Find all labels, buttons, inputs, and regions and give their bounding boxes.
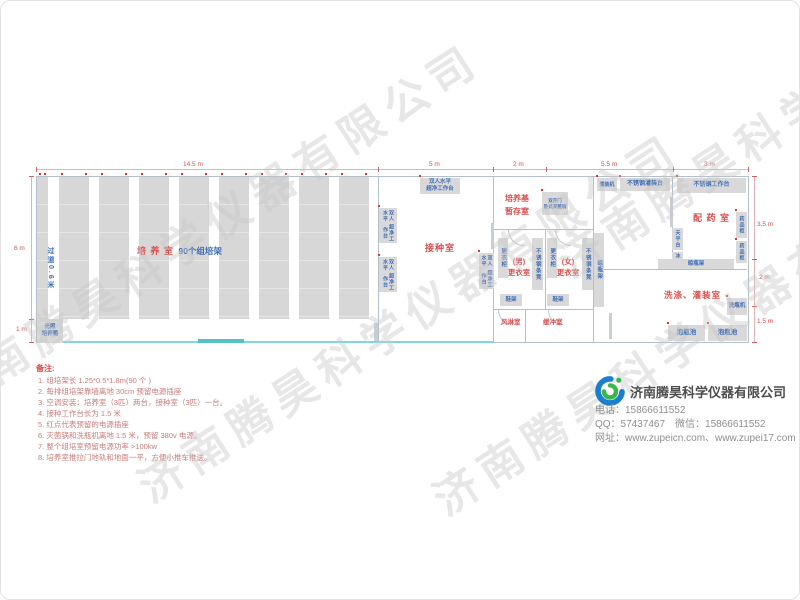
medicine-cabinet-2: 药品柜	[736, 241, 747, 263]
company-name: 济南腾昊科学仪器有限公司	[630, 382, 786, 401]
shoe-rack-male: 鞋架	[500, 294, 522, 306]
note-item-4: 4. 接种工作台长为 1.5 米	[38, 408, 121, 419]
culture-rack	[299, 177, 329, 319]
dim-tick	[29, 342, 34, 343]
wall-dispensing-south	[593, 269, 747, 270]
dim-tick	[546, 167, 547, 172]
dim-right-dispensing: 3.5 m	[757, 221, 773, 228]
inoculation-room-label: 接种室	[425, 241, 455, 254]
dim-tick	[752, 176, 757, 177]
culture-rack	[59, 177, 89, 319]
note-item-7: 7. 整个组培室预留电源功率 >100kw	[38, 441, 157, 452]
sliding-door-panel	[198, 339, 244, 343]
bottle-drying-rack-vertical: 晾瓶架	[594, 233, 604, 307]
culture-rack	[99, 177, 129, 319]
dim-left-bottom: 1 m	[16, 326, 27, 333]
dim-top-dispensing: 3 m	[704, 161, 715, 168]
note-item-5: 5. 红点代表预留的电源插座	[38, 419, 129, 430]
filling-table: 不锈钢灌装台	[620, 178, 670, 191]
culture-room-label: 培 养 室 90个组培架	[137, 241, 222, 259]
culture-room-name: 培 养 室	[137, 246, 174, 256]
dim-line-top	[36, 169, 749, 170]
culture-room-racks-count: 90个组培架	[178, 246, 221, 256]
culture-rack	[259, 177, 289, 319]
dim-tick	[673, 167, 674, 172]
air-shower-label: 风淋室	[501, 316, 521, 326]
clean-bench-right: 双人水平 超净工作台	[479, 253, 494, 289]
dim-left-main: 6 m	[14, 245, 25, 252]
dim-right-bottom: 1.5 m	[757, 318, 773, 325]
dim-right-middle: 2 m	[759, 274, 770, 281]
note-item-8: 8. 培养室推拉门地轨和地面一平，方便小推车推送。	[38, 452, 211, 463]
male-changing-label: (男) 更衣室	[505, 256, 533, 278]
shoe-rack-female: 鞋架	[547, 294, 569, 306]
bottle-drying-rack-horizontal: 晾瓶架	[658, 259, 734, 269]
dim-tick	[493, 167, 494, 172]
female-changing-label: (女) 更衣室	[554, 256, 582, 278]
dim-tick	[752, 306, 757, 307]
company-phone: 电话：15866611552	[595, 401, 685, 416]
filling-machine: 灌装机	[597, 178, 617, 191]
stainless-work-table: 不锈钢工作台	[677, 178, 746, 193]
dispensing-room-label: 配 药 室	[693, 211, 730, 224]
dim-tick	[29, 176, 34, 177]
sterilizer: 双开门 卧式灭菌锅	[542, 192, 568, 215]
bottle-washer: 洗瓶机	[727, 298, 747, 315]
floor-plan-page: 过道0.6米 培 养 室 90个组培架 光照 培养箱 双人水平 超净工作台 双人…	[0, 0, 800, 600]
soak-pool-2: 泡瓶池	[708, 325, 747, 341]
door-leaf-storage	[491, 223, 494, 249]
sliding-door-rail	[36, 341, 494, 343]
clean-bench-top: 双人水平 超净工作台	[420, 178, 460, 194]
medium-storage-label: 培养基暂存室	[502, 192, 532, 218]
company-qq-wechat: QQ：57437467 微信：15866611552	[595, 415, 765, 430]
notes-title: 备注:	[36, 363, 55, 374]
dim-tick	[748, 167, 749, 172]
bench-female: 不锈钢条凳	[582, 238, 593, 290]
dim-tick	[752, 259, 757, 260]
medicine-cabinet-1: 药品柜	[736, 212, 747, 238]
soak-pool-1: 泡瓶池	[668, 325, 705, 341]
light-incubator: 光照 培养箱	[37, 319, 63, 343]
note-item-3: 3. 空调安装：培养室（3匹）两台，接种室（3匹）一台。	[38, 397, 227, 408]
washing-room-label: 洗涤、灌装室	[664, 289, 721, 301]
door-leaf-buffer	[609, 313, 612, 339]
clean-bench-left-2: 双人水平 超净工作台	[379, 257, 397, 292]
door-leaf-culture	[374, 323, 378, 341]
culture-rack	[219, 177, 249, 319]
note-item-2: 2. 每排组培架靠墙离地 30cm 预留电源插座	[38, 386, 181, 397]
note-item-1: 1. 组培架长 1.25*0.5*1.8m(90 个 )	[38, 375, 151, 386]
dim-top-filling: 5.5 m	[601, 161, 617, 168]
clean-bench-left-1: 双人水平 超净工作台	[379, 208, 397, 243]
dim-top-inoculation: 5 m	[429, 161, 440, 168]
dim-line-left	[31, 176, 32, 343]
dim-tick	[29, 319, 34, 320]
door-leaf-dispensing	[670, 197, 673, 227]
dim-top-storage: 2 m	[513, 161, 524, 168]
dim-top-culture: 14.5 m	[183, 161, 203, 168]
aisle-label: 过道0.6米	[45, 233, 55, 303]
bench-male: 不锈钢条凳	[532, 238, 543, 290]
wall-male-female	[545, 229, 546, 309]
buffer-room-label: 缓冲室	[543, 316, 563, 326]
company-websites: 网址：www.zupeicn.com、www.zupei17.com	[595, 429, 796, 444]
balance-table: 天平台	[672, 228, 683, 250]
wall-airshower-buffer	[525, 309, 526, 343]
note-item-6: 6. 灭菌锅和洗瓶机离地 1.5 米，预留 380v 电源。	[38, 430, 201, 441]
dim-tick	[752, 342, 757, 343]
dim-tick	[36, 167, 37, 172]
dim-tick	[378, 167, 379, 172]
culture-rack	[339, 177, 369, 319]
